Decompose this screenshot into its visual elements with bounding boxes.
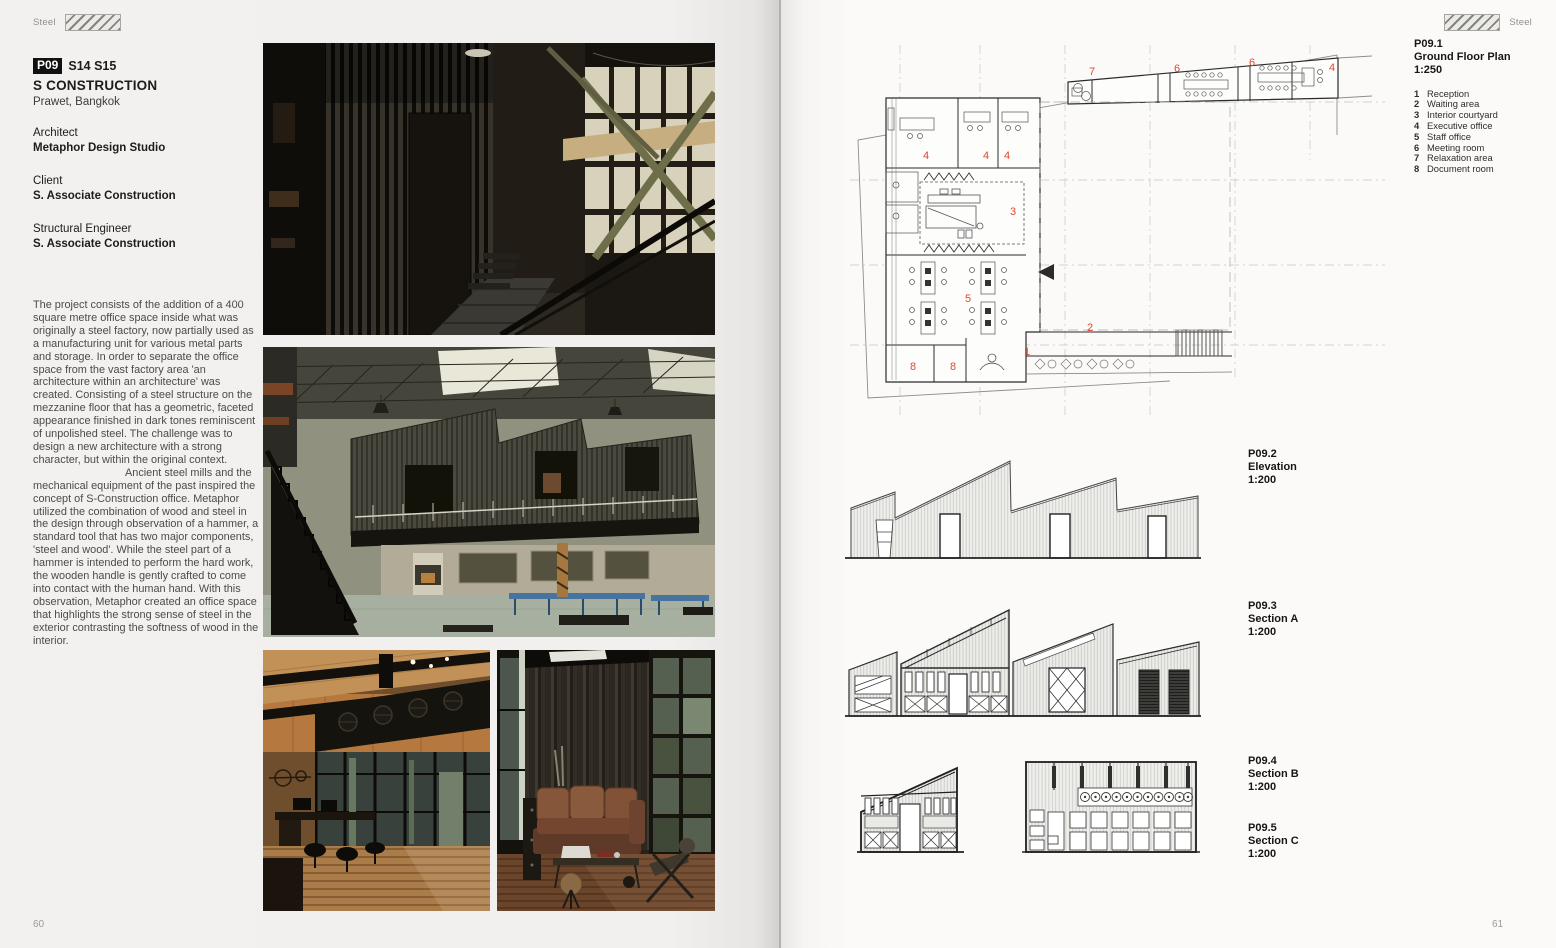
section-c-drawing — [1020, 752, 1202, 864]
running-header-left: Steel — [33, 14, 121, 31]
plan-room-number: 6 — [1174, 63, 1180, 75]
photo-office-art — [263, 650, 490, 911]
plan-room-number: 1 — [1024, 346, 1030, 358]
figure-scale: 1:200 — [1248, 626, 1298, 639]
plan-room-number: 6 — [1249, 57, 1255, 69]
figure-scale: 1:250 — [1414, 64, 1546, 77]
figure-title: Ground Floor Plan — [1414, 51, 1546, 64]
chapter-hatch-swatch — [65, 14, 121, 31]
figure-scale: 1:200 — [1248, 781, 1299, 794]
figure-id: P09.4 — [1248, 755, 1299, 768]
photo-corridor-art — [263, 43, 715, 335]
figure-id: P09.3 — [1248, 600, 1298, 613]
role-client: Client S. Associate Construction — [33, 174, 257, 204]
page-number-right: 61 — [1492, 919, 1503, 930]
plan-room-number: 5 — [965, 293, 971, 305]
role-label: Client — [33, 174, 257, 189]
figure-caption-section-a: P09.3 Section A 1:200 — [1248, 600, 1298, 640]
chapter-hatch-swatch — [1444, 14, 1500, 31]
figure-caption-section-c: P09.5 Section C 1:200 — [1248, 822, 1299, 862]
photo-corridor-steel — [263, 43, 715, 335]
project-code-line: P09 S14 S15 — [33, 58, 257, 74]
plan-room-number: 2 — [1087, 322, 1093, 334]
running-header-right: Steel — [1444, 14, 1532, 31]
figure-title: Section A — [1248, 613, 1298, 626]
project-location: Prawet, Bangkok — [33, 96, 257, 108]
ground-floor-plan-drawing — [840, 40, 1400, 420]
figure-caption-plan: P09.1 Ground Floor Plan 1:250 — [1414, 38, 1546, 78]
section-a-drawing — [843, 598, 1203, 728]
legend-label: Document room — [1427, 164, 1494, 175]
photo-factory-art — [263, 347, 715, 637]
figure-title: Section B — [1248, 768, 1299, 781]
legend-num: 5 — [1414, 132, 1427, 143]
plan-room-number: 8 — [950, 361, 956, 373]
ground-floor-plan: 7 6 6 4 4 4 4 3 5 2 1 8 8 — [840, 40, 1400, 420]
project-title: S CONSTRUCTION — [33, 78, 257, 93]
legend-label: Staff office — [1427, 132, 1471, 143]
elevation-drawing — [843, 448, 1203, 568]
project-codes: S14 S15 — [68, 59, 116, 73]
photo-lounge-sofa — [497, 650, 715, 911]
legend-item: 5Staff office — [1414, 132, 1546, 143]
plan-room-number: 4 — [1004, 150, 1010, 162]
plan-room-number: 7 — [1089, 66, 1095, 78]
page-left: Steel P09 S14 S15 S CONSTRUCTION Prawet,… — [0, 0, 779, 948]
project-code-badge: P09 — [33, 58, 62, 74]
plan-room-number: 4 — [1329, 62, 1335, 74]
legend-items: 1Reception 2Waiting area 3Interior court… — [1414, 89, 1546, 175]
page-number-left: 60 — [33, 919, 44, 930]
figure-caption-section-b: P09.4 Section B 1:200 — [1248, 755, 1299, 795]
body-paragraph-1: The project consists of the addition of … — [33, 299, 261, 467]
figure-scale: 1:200 — [1248, 848, 1299, 861]
plan-room-number: 4 — [923, 150, 929, 162]
role-structural-engineer: Structural Engineer S. Associate Constru… — [33, 222, 257, 252]
section-b-drawing — [853, 752, 968, 864]
figure-scale: 1:200 — [1248, 474, 1297, 487]
role-name: Metaphor Design Studio — [33, 141, 257, 156]
plan-legend: P09.1 Ground Floor Plan 1:250 1Reception… — [1414, 38, 1546, 175]
plan-room-number: 8 — [910, 361, 916, 373]
chapter-label: Steel — [33, 17, 56, 28]
role-name: S. Associate Construction — [33, 237, 257, 252]
legend-item: 8Document room — [1414, 164, 1546, 175]
book-spread: Steel P09 S14 S15 S CONSTRUCTION Prawet,… — [0, 0, 1556, 948]
photo-factory-hall — [263, 347, 715, 637]
role-label: Architect — [33, 126, 257, 141]
role-label: Structural Engineer — [33, 222, 257, 237]
figure-id: P09.2 — [1248, 448, 1297, 461]
plan-room-number: 4 — [983, 150, 989, 162]
legend-num: 8 — [1414, 164, 1427, 175]
plan-room-number: 3 — [1010, 206, 1016, 218]
body-text: The project consists of the addition of … — [33, 299, 261, 647]
project-info: P09 S14 S15 S CONSTRUCTION Prawet, Bangk… — [33, 58, 257, 252]
figure-id: P09.5 — [1248, 822, 1299, 835]
photo-lounge-art — [497, 650, 715, 911]
figure-caption-elevation: P09.2 Elevation 1:200 — [1248, 448, 1297, 488]
role-architect: Architect Metaphor Design Studio — [33, 126, 257, 156]
figure-title: Elevation — [1248, 461, 1297, 474]
figure-title: Section C — [1248, 835, 1299, 848]
page-right: Steel — [781, 0, 1556, 948]
photo-office-wood — [263, 650, 490, 911]
body-paragraph-2: Ancient steel mills and the mechanical e… — [33, 467, 261, 648]
figure-id: P09.1 — [1414, 38, 1546, 51]
chapter-label: Steel — [1509, 17, 1532, 28]
role-name: S. Associate Construction — [33, 189, 257, 204]
